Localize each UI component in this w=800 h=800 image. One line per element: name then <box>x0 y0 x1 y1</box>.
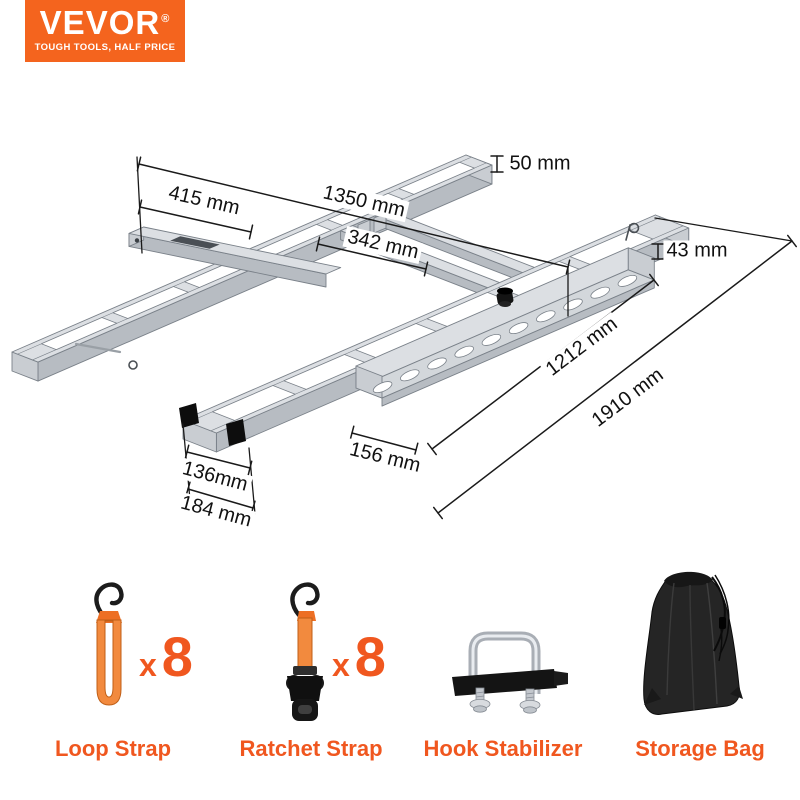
qty-multiplier: x <box>332 649 350 681</box>
loop-strap-qty: x 8 <box>139 629 193 685</box>
product-diagram <box>0 0 800 800</box>
loop-strap-webbing <box>97 620 121 705</box>
cross-member-2-top <box>375 210 540 275</box>
storage-bag-label: Storage Bag <box>635 736 765 762</box>
logo-tagline: TOUGH TOOLS, HALF PRICE <box>25 42 185 53</box>
qty-count: 8 <box>162 629 193 685</box>
dimension-line-1910mm-tick <box>434 507 443 518</box>
ratchet-strap-label: Ratchet Strap <box>239 736 382 762</box>
ratchet-top-jaw <box>293 666 317 675</box>
hook-stabilizer-label: Hook Stabilizer <box>424 736 583 762</box>
logo-text-row: VEVOR® <box>25 6 185 39</box>
dimension-line-415mm <box>140 207 251 232</box>
track-knob-cap <box>497 288 513 295</box>
loop-strap-label: Loop Strap <box>55 736 171 762</box>
dimension-line-156mm <box>352 433 416 450</box>
qty-count: 8 <box>355 629 386 685</box>
track-knob-base <box>499 301 511 307</box>
hook-stabilizer-image <box>452 636 568 713</box>
dimension-line-184mm <box>188 489 253 508</box>
drawstring-toggle <box>719 617 726 629</box>
ratchet-handle-slot <box>298 705 312 714</box>
ratchet-strap-qty: x 8 <box>332 629 386 685</box>
stabilizer-bar-tab <box>554 671 568 686</box>
ratchet-strap-image <box>286 585 324 721</box>
ratchet-body <box>287 676 323 701</box>
hitch-pin-hole <box>135 238 139 242</box>
ratchet-strap-webbing <box>298 618 312 670</box>
registered-mark-icon: ® <box>161 13 170 25</box>
dimension-line-1212mm-tick <box>428 443 436 454</box>
dimension-line-136mm <box>187 452 250 468</box>
logo-wordmark: VEVOR <box>40 4 161 41</box>
loop-strap-image <box>96 585 122 705</box>
storage-bag-image <box>644 572 743 715</box>
qty-multiplier: x <box>139 649 157 681</box>
stabilizer-bar <box>452 669 557 696</box>
vevor-logo: VEVOR® TOUGH TOOLS, HALF PRICE <box>25 0 185 62</box>
clip-pin-ring <box>129 361 137 369</box>
